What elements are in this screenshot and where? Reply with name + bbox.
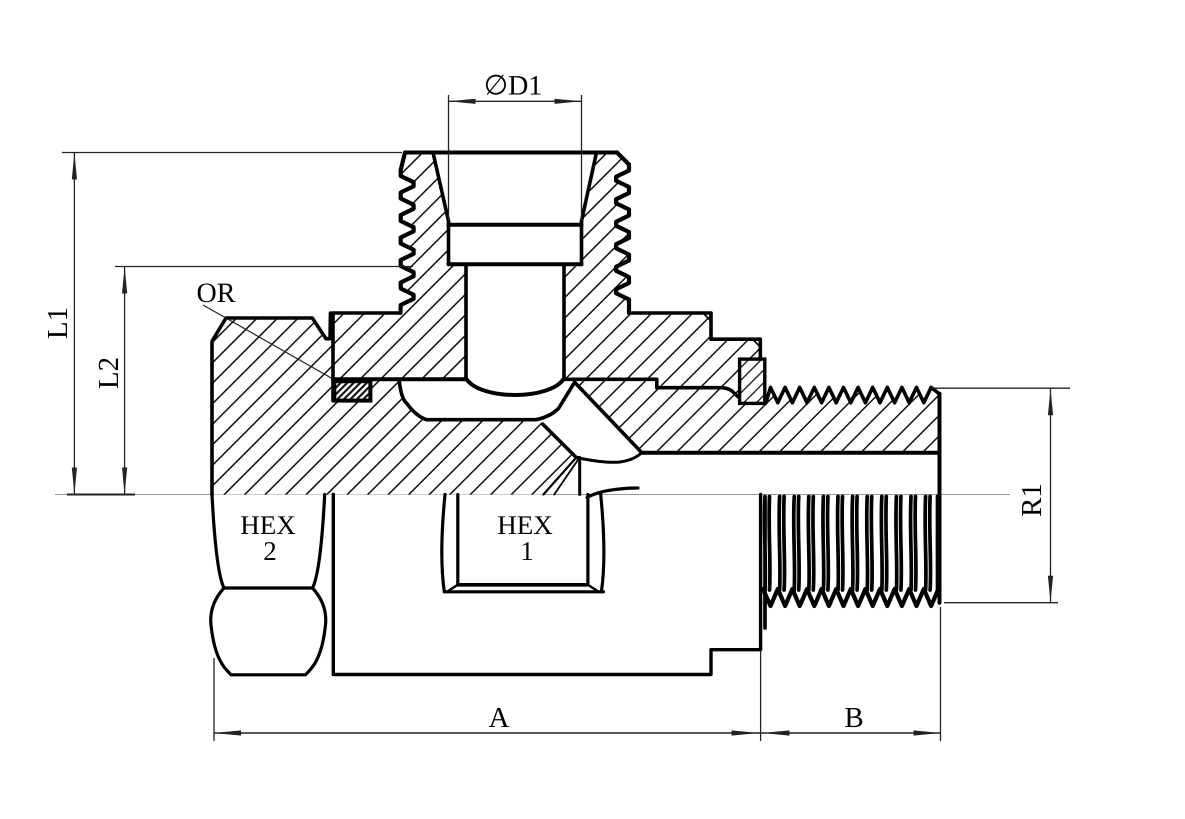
svg-text:OR: OR: [197, 278, 236, 309]
svg-text:∅D1: ∅D1: [484, 71, 543, 102]
svg-text:R1: R1: [1016, 483, 1048, 517]
svg-text:2: 2: [263, 536, 277, 566]
svg-text:L1: L1: [42, 307, 74, 339]
svg-text:A: A: [489, 702, 510, 734]
svg-text:B: B: [844, 702, 863, 734]
svg-text:L2: L2: [93, 357, 125, 389]
svg-text:1: 1: [520, 536, 534, 566]
